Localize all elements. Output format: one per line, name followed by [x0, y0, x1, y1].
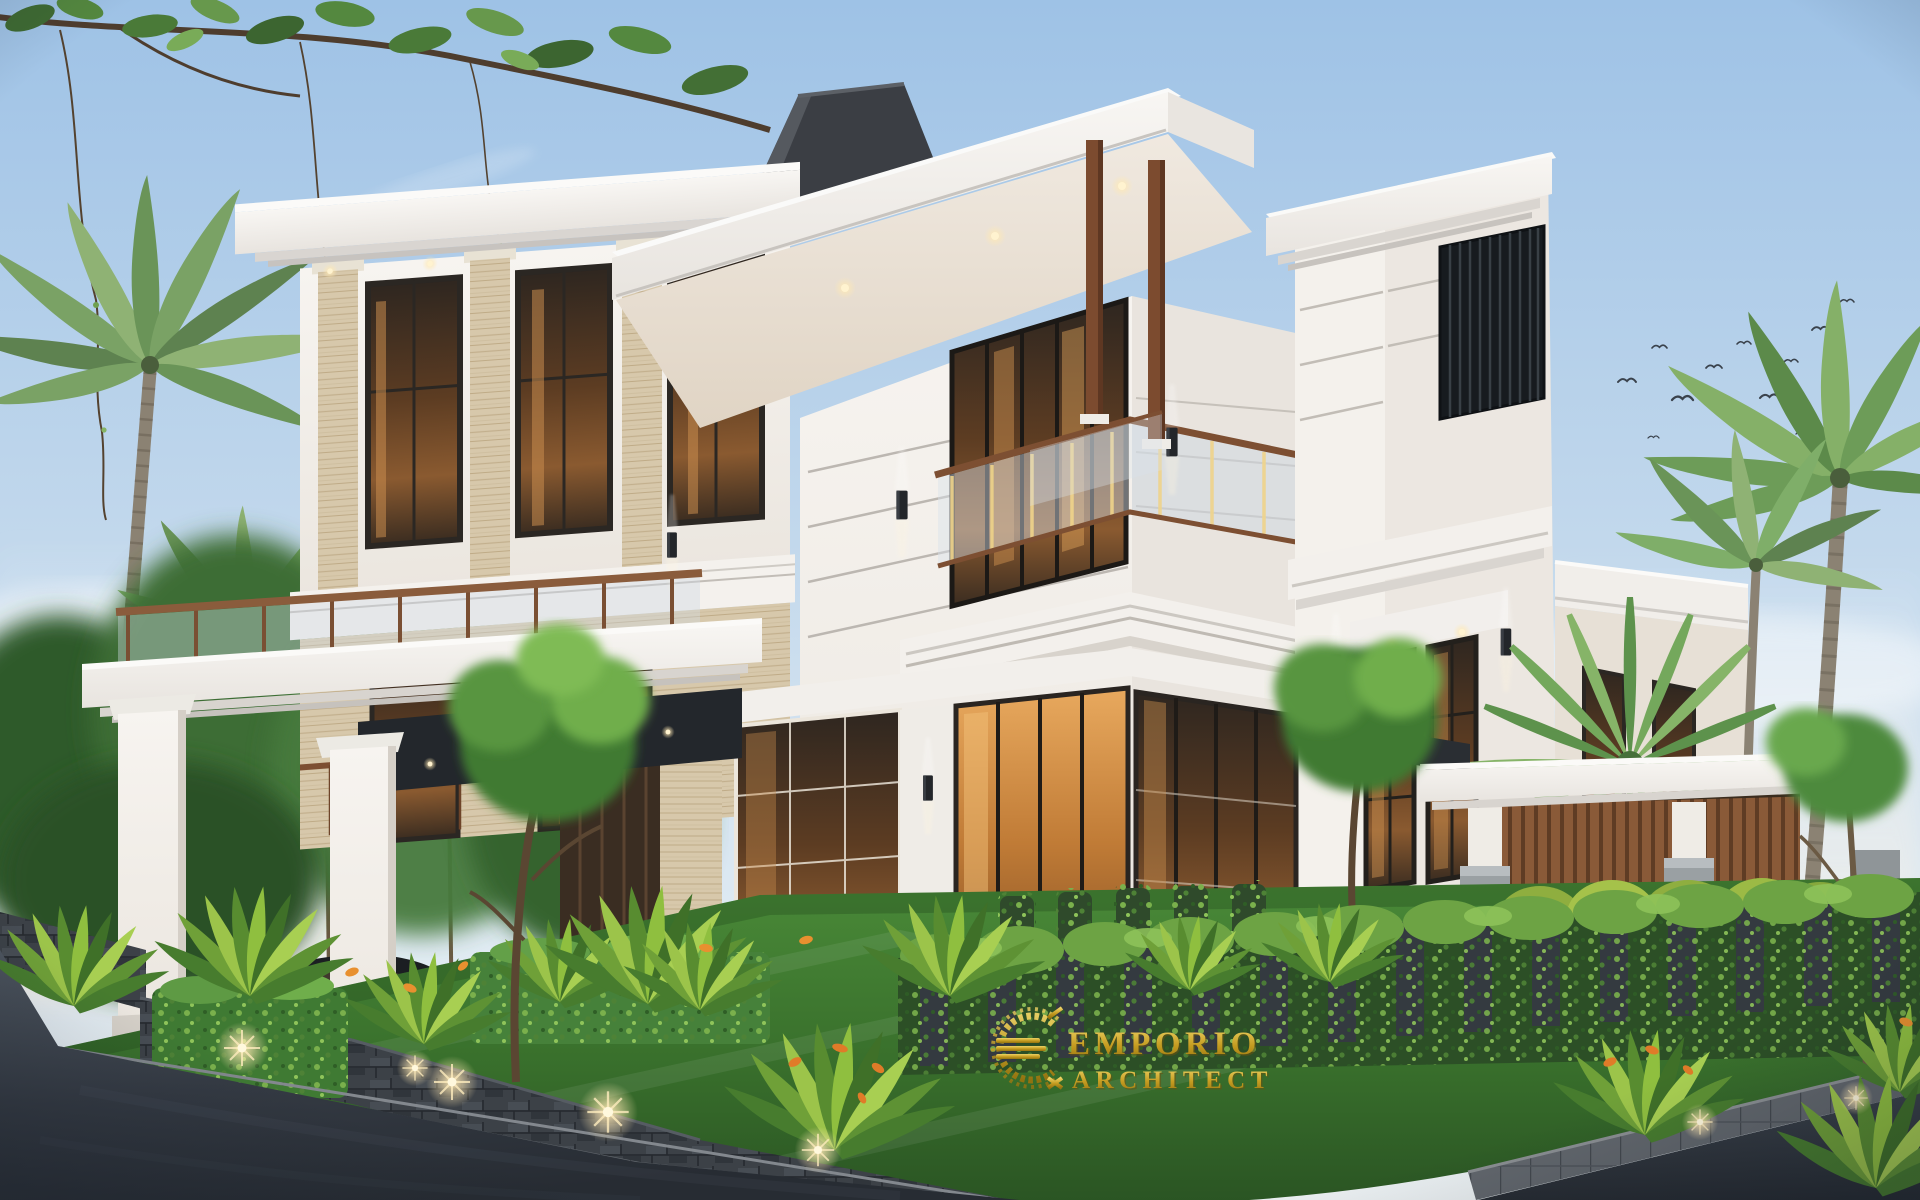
vignette-overlay: [0, 0, 1920, 1200]
villa-render-image: EMPORIO EMPORIO ARCHITECT ARCHITECT: [0, 0, 1920, 1200]
